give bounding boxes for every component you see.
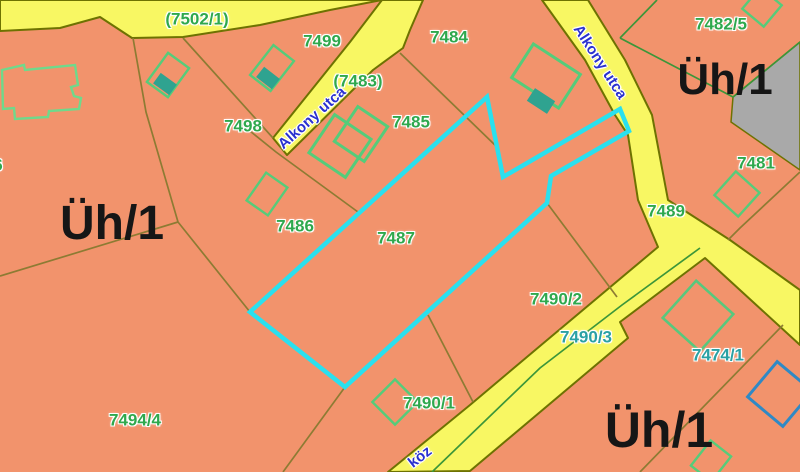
parcel-label-7498: 7498: [224, 118, 262, 135]
parcel-label-7489: 7489: [647, 203, 685, 220]
parcel-label-7502-1: (7502/1): [165, 11, 228, 28]
parcel-label-7474-1: 7474/1: [692, 347, 744, 364]
zone-label-uh1-bottom-right: Üh/1: [605, 405, 713, 455]
parcel-label-7482-5: 7482/5: [695, 16, 747, 33]
parcel-label-7490-2: 7490/2: [530, 291, 582, 308]
parcel-label-7494-4: 7494/4: [109, 412, 161, 429]
parcel-label-7487: 7487: [377, 230, 415, 247]
parcel-label-7484: 7484: [430, 29, 468, 46]
parcel-label-7490-3: 7490/3: [560, 329, 612, 346]
parcel-label-7485: 7485: [392, 114, 430, 131]
parcel-label-partial-6: 6: [0, 157, 3, 174]
parcel-label-7481: 7481: [737, 155, 775, 172]
zone-label-uh1-top-right: Üh/1: [677, 58, 772, 102]
cadastral-map-canvas[interactable]: (7502/1) 7499 7484 (7483) 7498 7485 7482…: [0, 0, 800, 472]
parcel-label-7490-1: 7490/1: [403, 395, 455, 412]
parcel-label-7499: 7499: [303, 33, 341, 50]
parcel-label-7486: 7486: [276, 218, 314, 235]
zone-label-uh1-left: Üh/1: [60, 200, 164, 248]
